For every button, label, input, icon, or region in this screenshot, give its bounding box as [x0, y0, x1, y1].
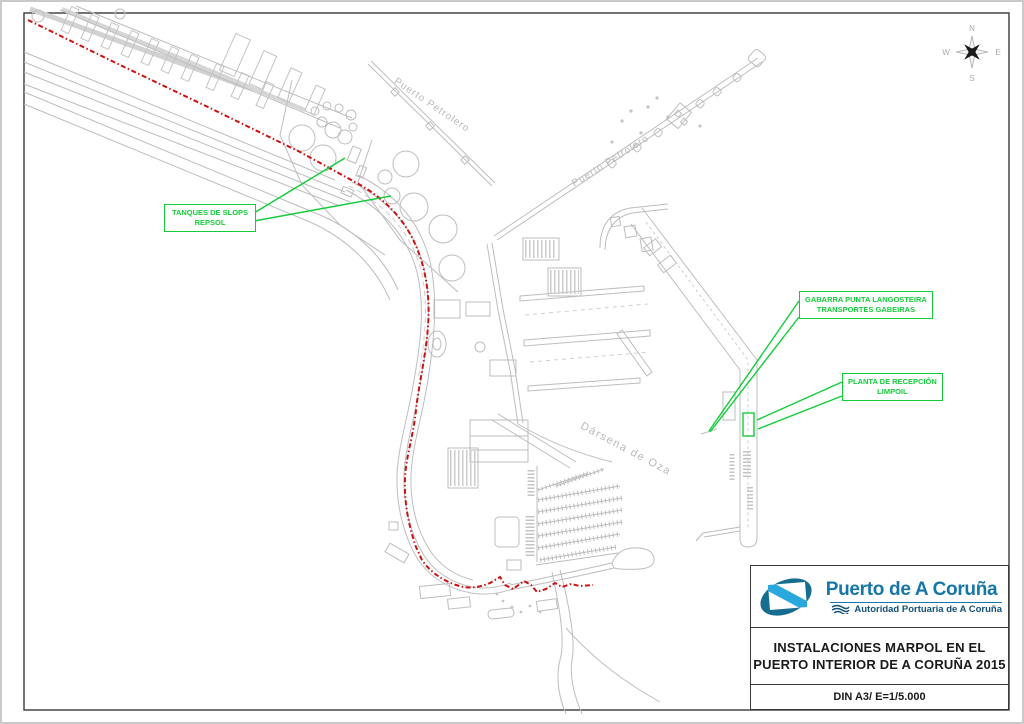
drawing-title-line1: INSTALACIONES MARPOL EN EL [773, 640, 985, 655]
title-block: Puerto de A Coruña Autoridad Portuaria d… [750, 565, 1009, 710]
waves-icon [830, 604, 850, 614]
annotation-line: LIMPOIL [848, 387, 937, 397]
galicia-flag-logo-icon [757, 575, 815, 619]
compass-w-label: W [942, 48, 950, 57]
annotation-line: PLANTA DE RECEPCIÓN [848, 377, 937, 387]
port-authority-logo: Puerto de A Coruña Autoridad Portuaria d… [751, 566, 1008, 628]
logo-title: Puerto de A Coruña [821, 579, 1002, 601]
drawing-scale-text: DIN A3/ E=1/5.000 [833, 691, 925, 703]
map-linework [24, 6, 767, 714]
annotation-line: TANQUES DE SLOPS [170, 208, 250, 218]
marina-pontoons [538, 469, 622, 560]
drawing-sheet: N S E W Puerto Petrolero Puerto Petroler… [0, 0, 1024, 724]
annotation-line: TRANSPORTES GABEIRAS [805, 305, 927, 315]
marpol-route-red-dashed [28, 20, 593, 592]
compass-n-label: N [969, 24, 975, 33]
compass-e-label: E [995, 48, 1000, 57]
annotation-gabarra-langosteira: GABARRA PUNTA LANGOSTEIRA TRANSPORTES GA… [799, 291, 933, 319]
annotation-tanques-slops: TANQUES DE SLOPS REPSOL [164, 204, 256, 232]
compass-s-label: S [969, 74, 974, 83]
drawing-title-line2: PUERTO INTERIOR DE A CORUÑA 2015 [753, 657, 1005, 672]
logo-subtitle: Autoridad Portuaria de A Coruña [854, 604, 1002, 615]
drawing-scale: DIN A3/ E=1/5.000 [751, 685, 1008, 709]
annotation-planta-limpoil: PLANTA DE RECEPCIÓN LIMPOIL [842, 373, 943, 401]
tank-farm [289, 102, 465, 281]
warehouse-row [61, 6, 325, 114]
annotation-line: GABARRA PUNTA LANGOSTEIRA [805, 295, 927, 305]
drawing-title: INSTALACIONES MARPOL EN EL PUERTO INTERI… [751, 628, 1008, 685]
compass-rose: N S E W [942, 24, 1000, 83]
annotation-line: REPSOL [170, 218, 250, 228]
